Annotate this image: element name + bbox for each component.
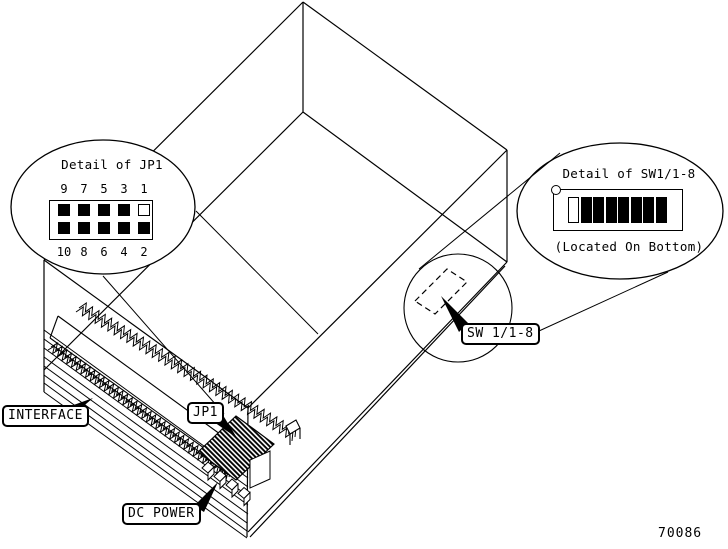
pin-number: 9 (54, 182, 74, 196)
pin-row-end-bracket (286, 420, 300, 445)
dip-switch-3 (593, 197, 604, 223)
pin-number: 8 (74, 245, 94, 259)
pin-number: 10 (54, 245, 74, 259)
jp1-pin-filled (118, 204, 131, 217)
jp1-pin-open (138, 204, 151, 217)
sw1-location-dashed-outline (415, 269, 467, 314)
sw1-location-note: (Located On Bottom) (545, 239, 713, 254)
dip-switch-1 (568, 197, 579, 223)
sw1-label: SW 1/1-8 (461, 323, 540, 345)
jp1-pin-filled (118, 222, 131, 235)
dip-switch-7 (643, 197, 654, 223)
pin-number: 6 (94, 245, 114, 259)
sw1-detail-title: Detail of SW1/1-8 (545, 166, 713, 181)
pin-number: 3 (114, 182, 134, 196)
jp1-pin-filled (58, 222, 71, 235)
dip-switch-8 (656, 197, 667, 223)
pin-number: 7 (74, 182, 94, 196)
jp1-pin-grid (49, 200, 153, 240)
dip-switch-2 (581, 197, 592, 223)
pin-number: 2 (134, 245, 154, 259)
jp1-top-pin-numbers: 97531 (54, 182, 154, 196)
pin-number: 5 (94, 182, 114, 196)
jp1-bottom-pin-numbers: 108642 (54, 245, 154, 259)
dip-switch-6 (631, 197, 642, 223)
figure-number: 70086 (658, 526, 702, 541)
sw1-index-marker (551, 185, 561, 195)
pin-number: 1 (134, 182, 154, 196)
dip-switch-4 (606, 197, 617, 223)
sw1-callout-line-lower (528, 272, 668, 336)
jp1-pin-filled (138, 222, 151, 235)
jp1-pin-filled (58, 204, 71, 217)
interface-label: INTERFACE (2, 405, 89, 427)
jp1-label: JP1 (187, 402, 224, 424)
jp1-pin-filled (78, 204, 91, 217)
pin-number: 4 (114, 245, 134, 259)
jp1-pin-filled (98, 222, 111, 235)
dip-switch-5 (618, 197, 629, 223)
jp1-callout-line-right (196, 211, 318, 334)
technical-diagram: Detail of JP1 97531 108642 Detail of SW1… (0, 0, 728, 549)
dc-power-label: DC POWER (122, 503, 201, 525)
sw1-location-circle (404, 254, 512, 362)
jp1-pin-filled (78, 222, 91, 235)
device-line-art (0, 0, 728, 549)
sw1-dip-switch-body (553, 189, 683, 231)
jp1-detail-title: Detail of JP1 (29, 157, 195, 172)
jp1-pin-filled (98, 204, 111, 217)
